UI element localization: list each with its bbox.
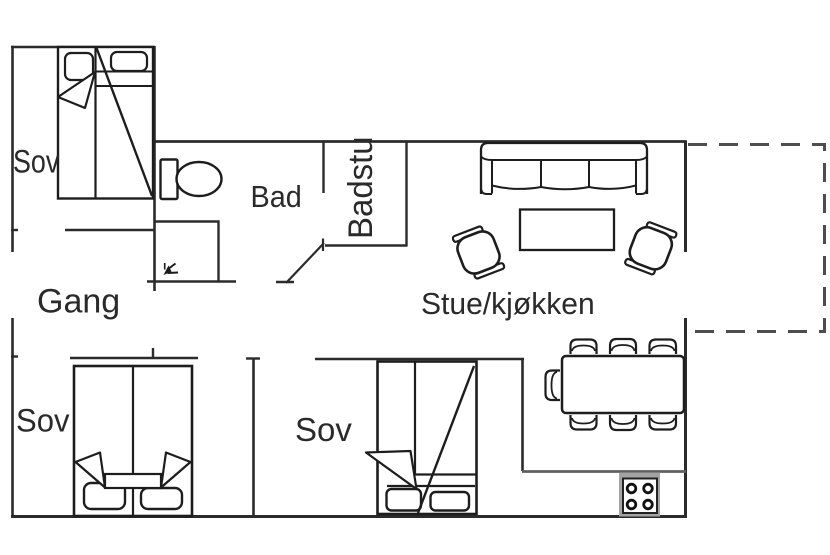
svg-text:Sov: Sov	[13, 144, 60, 180]
svg-text:Sov: Sov	[295, 411, 352, 448]
svg-text:Bad: Bad	[251, 180, 302, 214]
svg-text:Gang: Gang	[37, 283, 120, 321]
svg-text:Sov: Sov	[16, 402, 70, 439]
svg-text:Badstu: Badstu	[343, 136, 381, 239]
svg-text:Stue/kjøkken: Stue/kjøkken	[421, 287, 595, 322]
